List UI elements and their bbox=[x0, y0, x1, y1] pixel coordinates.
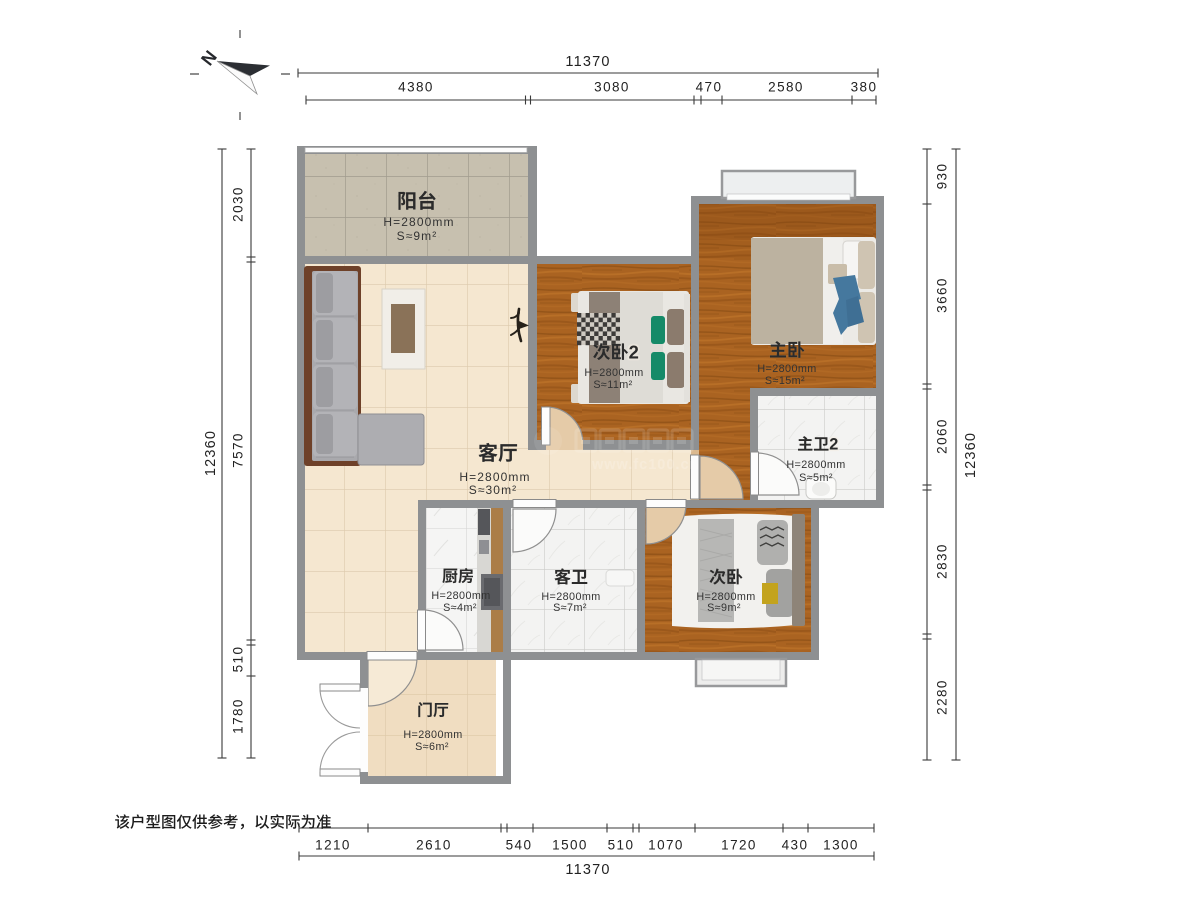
svg-text:H=2800mm: H=2800mm bbox=[786, 459, 845, 471]
svg-text:S≈30m²: S≈30m² bbox=[469, 483, 518, 497]
svg-text:510: 510 bbox=[231, 646, 246, 673]
svg-text:2280: 2280 bbox=[935, 679, 950, 715]
svg-text:S≈11m²: S≈11m² bbox=[593, 379, 632, 391]
svg-text:7570: 7570 bbox=[231, 432, 246, 468]
svg-text:H=2800mm: H=2800mm bbox=[757, 363, 816, 375]
svg-text:S≈4m²: S≈4m² bbox=[443, 602, 477, 614]
svg-text:470: 470 bbox=[696, 80, 723, 95]
svg-text:H=2800mm: H=2800mm bbox=[584, 367, 643, 379]
svg-text:1500: 1500 bbox=[552, 838, 588, 853]
svg-text:11370: 11370 bbox=[565, 54, 610, 70]
svg-text:S≈9m²: S≈9m² bbox=[707, 602, 741, 614]
svg-text:1780: 1780 bbox=[231, 698, 246, 734]
svg-text:H=2800mm: H=2800mm bbox=[403, 729, 462, 741]
svg-text:H=2800mm: H=2800mm bbox=[459, 470, 530, 484]
svg-text:S≈9m²: S≈9m² bbox=[397, 229, 438, 243]
svg-text:1070: 1070 bbox=[648, 838, 684, 853]
svg-text:4380: 4380 bbox=[398, 80, 434, 95]
svg-text:S≈15m²: S≈15m² bbox=[765, 375, 805, 387]
svg-text:12360: 12360 bbox=[963, 432, 979, 478]
svg-text:S≈6m²: S≈6m² bbox=[415, 741, 449, 753]
svg-text:540: 540 bbox=[506, 838, 533, 853]
svg-text:11370: 11370 bbox=[565, 862, 610, 878]
svg-text:1720: 1720 bbox=[721, 838, 757, 853]
svg-text:2610: 2610 bbox=[416, 838, 452, 853]
svg-text:2830: 2830 bbox=[935, 543, 950, 579]
svg-text:430: 430 bbox=[782, 838, 809, 853]
svg-text:2060: 2060 bbox=[935, 418, 950, 454]
svg-text:510: 510 bbox=[608, 838, 635, 853]
svg-text:H=2800mm: H=2800mm bbox=[431, 590, 490, 602]
svg-text:www.fc100.cn: www.fc100.cn bbox=[591, 457, 699, 473]
svg-text:930: 930 bbox=[935, 163, 950, 190]
svg-text:H=2800mm: H=2800mm bbox=[383, 215, 454, 229]
svg-text:2030: 2030 bbox=[231, 186, 246, 222]
svg-text:12360: 12360 bbox=[203, 430, 219, 476]
svg-text:3080: 3080 bbox=[594, 80, 630, 95]
svg-text:S≈7m²: S≈7m² bbox=[553, 602, 587, 614]
svg-text:3660: 3660 bbox=[935, 277, 950, 313]
svg-text:1210: 1210 bbox=[315, 838, 351, 853]
svg-text:S≈5m²: S≈5m² bbox=[799, 472, 833, 484]
svg-text:380: 380 bbox=[851, 80, 878, 95]
svg-text:2: 2 bbox=[829, 436, 838, 454]
svg-text:1300: 1300 bbox=[823, 838, 859, 853]
svg-text:2580: 2580 bbox=[768, 80, 804, 95]
svg-text:2: 2 bbox=[629, 341, 639, 362]
